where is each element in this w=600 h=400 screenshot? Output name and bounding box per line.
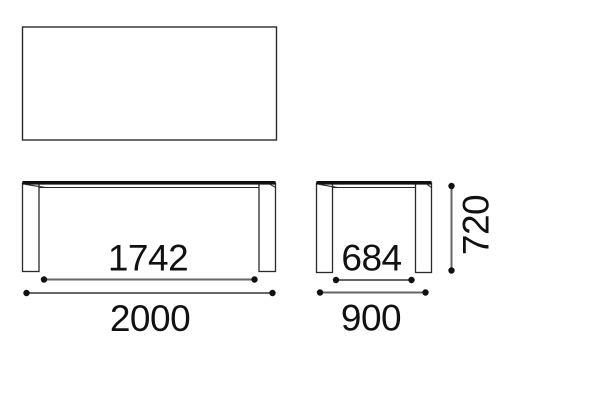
front-right-leg	[259, 183, 276, 272]
dimension-endpoint-dot	[448, 183, 454, 189]
front-inner-width-label: 1742	[108, 238, 188, 279]
front-inner-width-dimension: 1742	[41, 238, 258, 283]
top-view-tabletop-outline	[23, 27, 277, 140]
height-dimension: 720	[448, 183, 496, 274]
side-inner-depth-label: 684	[341, 238, 401, 279]
side-inner-depth-dimension: 684	[333, 238, 415, 284]
front-tabletop-edge	[23, 181, 276, 185]
side-right-leg	[416, 183, 432, 273]
side-tabletop-edge	[317, 181, 432, 185]
dimension-endpoint-dot	[422, 289, 428, 295]
top-view	[23, 27, 277, 140]
dimension-endpoint-dot	[269, 290, 275, 296]
side-overall-depth-dimension: 900	[317, 289, 429, 338]
front-left-leg	[23, 183, 40, 272]
dimension-endpoint-dot	[333, 277, 339, 283]
front-overall-width-label: 2000	[110, 298, 190, 339]
dimension-endpoint-dot	[23, 290, 29, 296]
dimension-endpoint-dot	[408, 277, 414, 283]
dimension-drawing-canvas: 1742 2000 684	[0, 0, 600, 400]
height-label: 720	[456, 195, 497, 255]
table-dimension-drawing: 1742 2000 684	[0, 0, 600, 400]
side-overall-depth-label: 900	[341, 298, 401, 339]
dimension-endpoint-dot	[448, 267, 454, 273]
dimension-endpoint-dot	[251, 276, 257, 282]
dimension-endpoint-dot	[41, 276, 47, 282]
side-left-leg	[317, 183, 333, 273]
front-overall-width-dimension: 2000	[23, 290, 275, 339]
dimension-endpoint-dot	[317, 289, 323, 295]
